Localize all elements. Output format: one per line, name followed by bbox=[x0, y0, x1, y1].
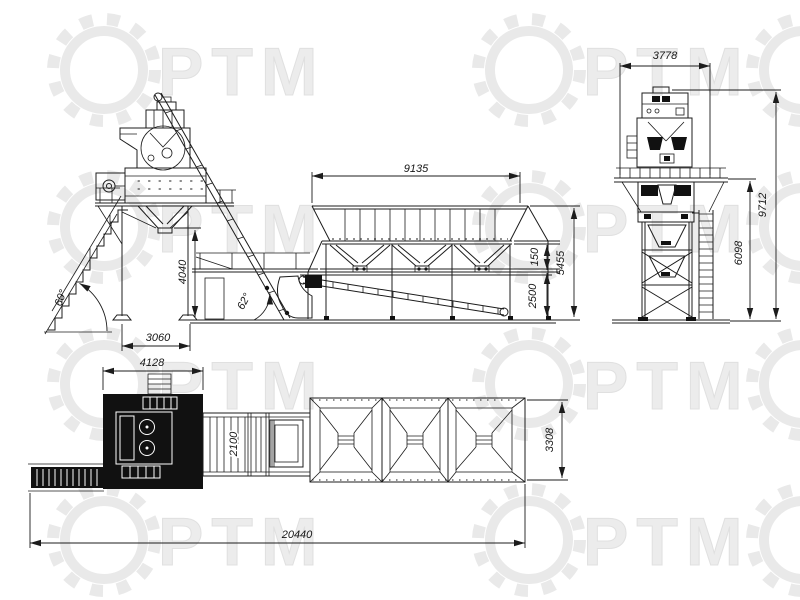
dim-support-span: 3060 bbox=[146, 332, 171, 344]
dim-belt-lip: 150 bbox=[529, 247, 541, 266]
watermark-text: PTM bbox=[158, 504, 326, 580]
dim-tower-height: 6098 bbox=[733, 240, 745, 265]
dim-stairs-angle: 60° bbox=[53, 288, 70, 308]
dim-discharge-height: 2500 bbox=[527, 283, 539, 309]
dim-bins-length: 9135 bbox=[404, 163, 429, 175]
bins-plan bbox=[310, 398, 525, 482]
dim-total-length: 20440 bbox=[281, 529, 313, 541]
dim-mixer-block: 4128 bbox=[140, 357, 165, 369]
technical-drawing: PTM PTM PTM PTM PTM PTM PTM PTM 60° bbox=[0, 0, 800, 600]
watermark-text: PTM bbox=[158, 34, 326, 110]
watermark-text: PTM bbox=[158, 191, 326, 267]
dim-bins-total-height: 5455 bbox=[555, 250, 567, 275]
dim-skip-angle: 62° bbox=[235, 291, 254, 312]
belt-conveyor-side bbox=[278, 275, 508, 318]
dim-front-width: 3778 bbox=[653, 50, 678, 62]
mixer-block-plan bbox=[103, 394, 203, 489]
dim-bins-width: 3308 bbox=[544, 427, 556, 452]
dim-conveyor-width: 2100 bbox=[228, 431, 240, 457]
watermark-text: PTM bbox=[583, 504, 751, 580]
dim-clearance-height: 4040 bbox=[177, 259, 189, 284]
stairs-plan bbox=[28, 464, 104, 491]
watermark-text: PTM bbox=[583, 348, 751, 424]
dim-total-height: 9712 bbox=[757, 193, 769, 217]
